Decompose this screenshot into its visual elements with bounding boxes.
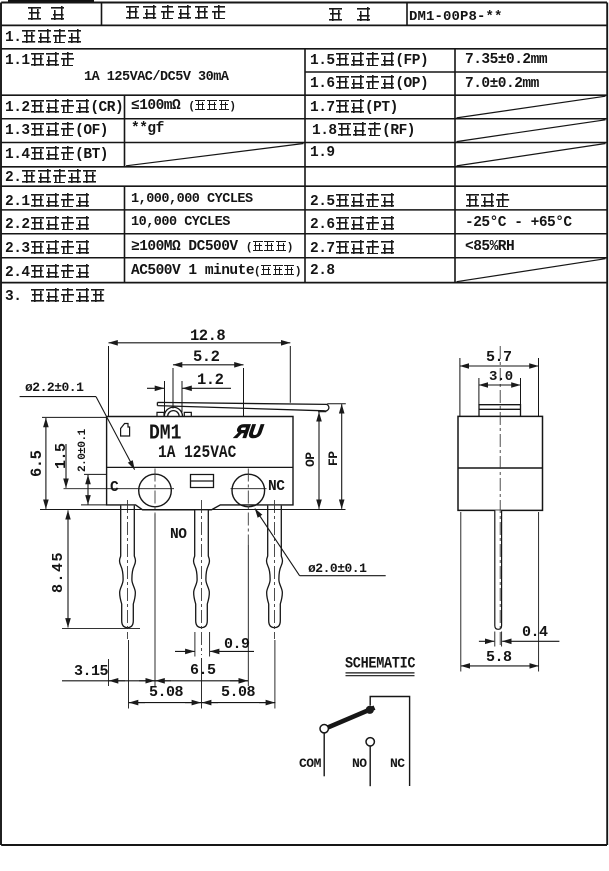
svg-text:ЯU: ЯU [232,422,266,442]
